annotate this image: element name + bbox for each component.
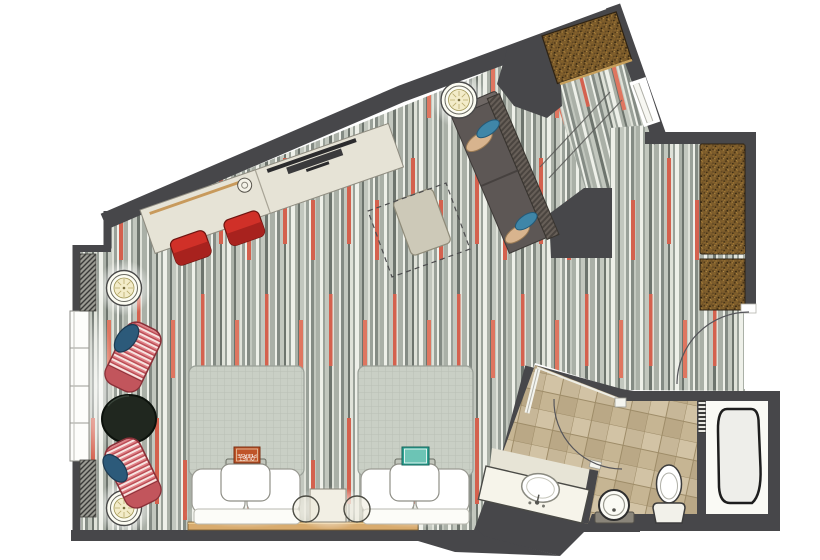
svg-text:PLEASE: PLEASE xyxy=(237,452,257,458)
